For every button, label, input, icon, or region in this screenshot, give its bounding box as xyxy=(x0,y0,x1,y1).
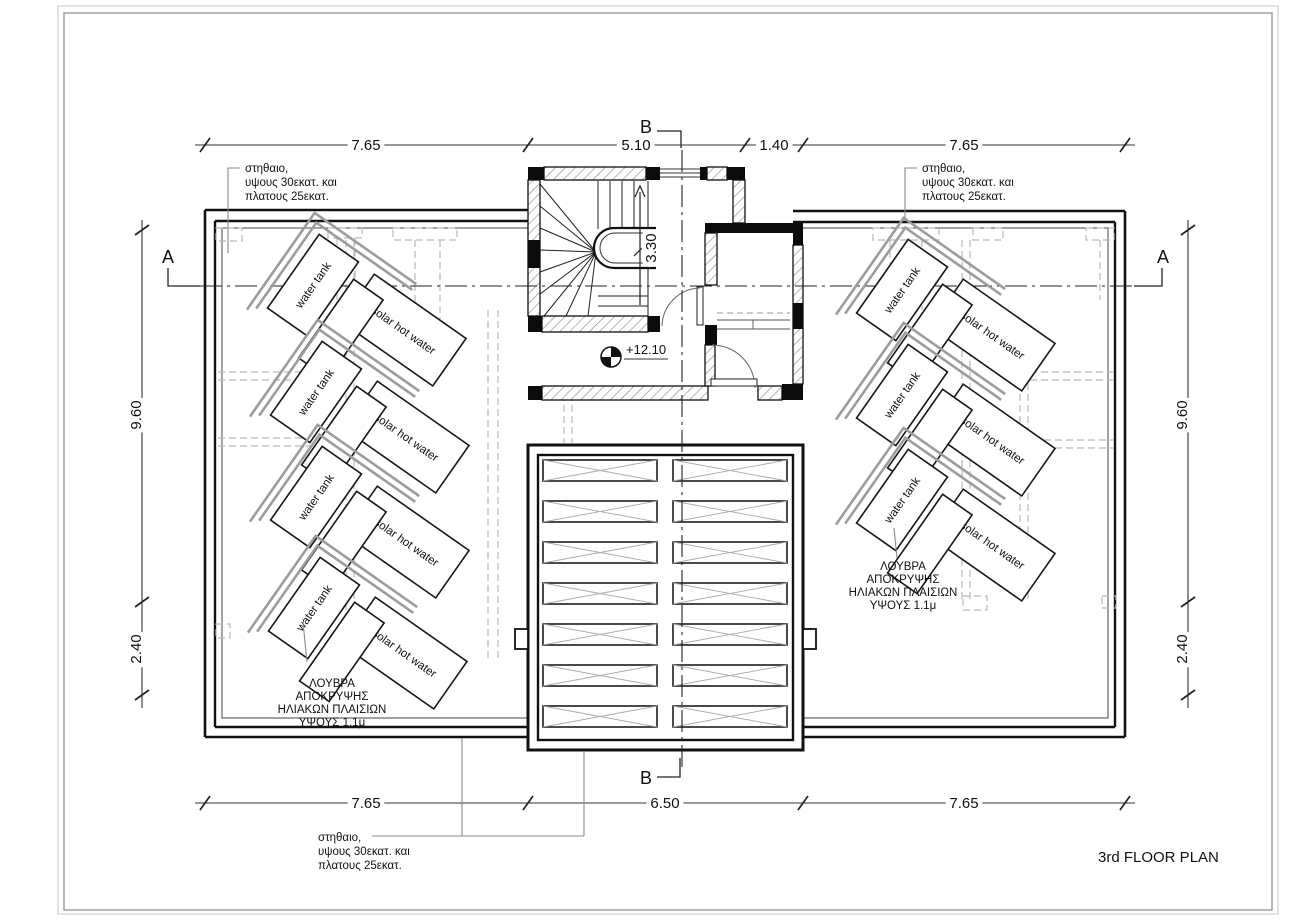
note-line: ΛΟΥΒΡΑ xyxy=(880,561,926,573)
drawing-sheet: 3.30 xyxy=(0,0,1308,921)
note-line: στηθαιο, xyxy=(245,163,288,175)
dim-bottom-2: 6.50 xyxy=(650,795,679,812)
note-line: ΥΨΟΥΣ 1.1μ xyxy=(870,600,936,612)
floor-plan-canvas: 3.30 xyxy=(0,0,1308,921)
dim-left-2: 2.40 xyxy=(128,634,145,663)
section-letter-b-top: B xyxy=(640,117,652,137)
dim-right-2: 2.40 xyxy=(1174,634,1191,663)
section-letter-a-right: A xyxy=(1157,247,1169,267)
note-line: ΗΛΙΑΚΩΝ ΠΛΑΙΣΙΩΝ xyxy=(278,704,387,716)
section-letter-a-left: A xyxy=(162,247,174,267)
dim-top-4: 7.65 xyxy=(949,137,978,154)
dim-bottom-3: 7.65 xyxy=(949,795,978,812)
note-line: ΗΛΙΑΚΩΝ ΠΛΑΙΣΙΩΝ xyxy=(849,587,958,599)
stair-height-dim: 3.30 xyxy=(643,233,660,262)
dimension-bottom: 7.65 6.50 7.65 xyxy=(195,795,1135,812)
note-line: ΥΨΟΥΣ 1.1μ xyxy=(299,717,365,729)
dim-top-2: 5.10 xyxy=(621,137,650,154)
note-line: υψους 30εκατ. και xyxy=(922,177,1014,189)
note-line: στηθαιο, xyxy=(318,832,361,844)
note-line: στηθαιο, xyxy=(922,163,965,175)
skylight-louvre-grid xyxy=(515,445,816,750)
dimension-top: 7.65 5.10 1.40 7.65 xyxy=(195,137,1135,154)
dim-left-1: 9.60 xyxy=(128,400,145,429)
dim-top-1: 7.65 xyxy=(351,137,380,154)
section-letter-b-bottom: B xyxy=(640,768,652,788)
note-line: πλατους 25εκατ. xyxy=(922,191,1006,203)
note-line: πλατους 25εκατ. xyxy=(245,191,329,203)
note-line: ΛΟΥΒΡΑ xyxy=(309,678,355,690)
dim-top-3: 1.40 xyxy=(759,137,788,154)
note-line: υψους 30εκατ. και xyxy=(318,846,410,858)
note-line: ΑΠΟΚΡΥΨΗΣ xyxy=(867,574,940,586)
dimension-right: 9.60 2.40 xyxy=(1174,220,1195,708)
dim-bottom-1: 7.65 xyxy=(351,795,380,812)
dimension-left: 9.60 2.40 xyxy=(128,220,149,708)
note-line: υψους 30εκατ. και xyxy=(245,177,337,189)
note-line: ΑΠΟΚΡΥΨΗΣ xyxy=(296,691,369,703)
page-title: 3rd FLOOR PLAN xyxy=(1098,849,1219,866)
dim-right-1: 9.60 xyxy=(1174,400,1191,429)
roof-level-value: +12.10 xyxy=(626,342,666,357)
note-line: πλατους 25εκατ. xyxy=(318,860,402,872)
